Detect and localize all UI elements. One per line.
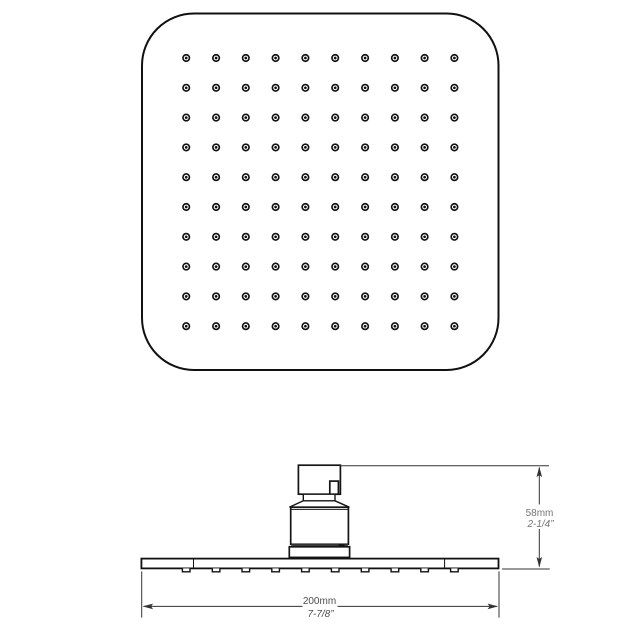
- svg-text:58mm: 58mm: [526, 508, 554, 519]
- svg-text:200mm: 200mm: [303, 596, 336, 607]
- svg-text:7-7/8”: 7-7/8”: [307, 609, 334, 620]
- svg-text:2-1/4”: 2-1/4”: [526, 519, 554, 530]
